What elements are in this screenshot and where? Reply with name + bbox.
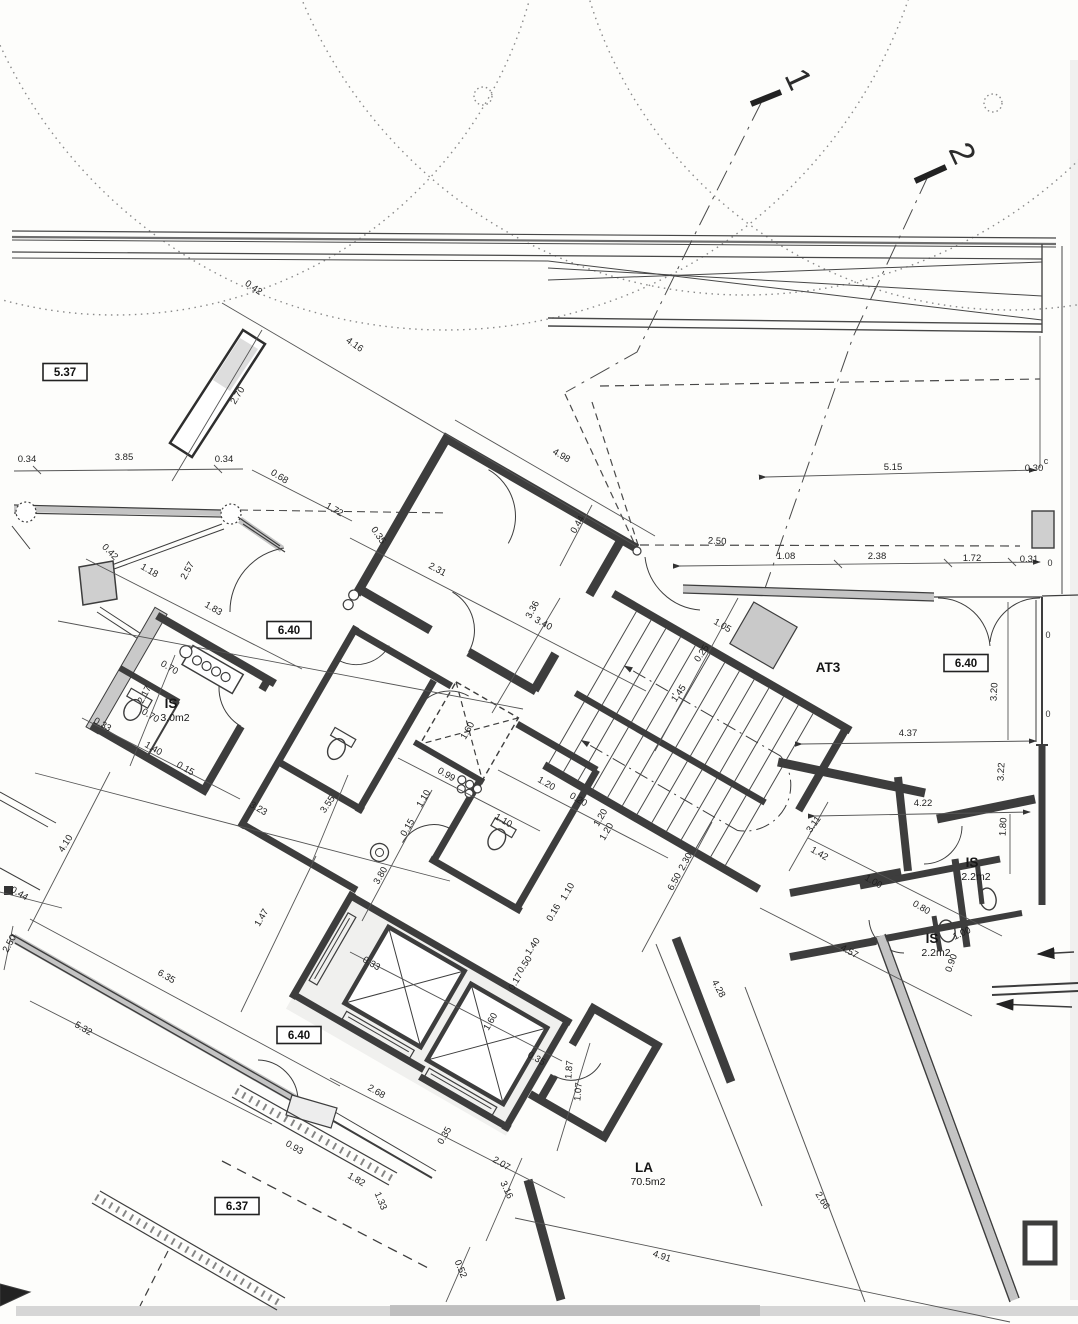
dimension-label: 6.35 — [155, 967, 177, 986]
dimension-label: 0.44 — [8, 884, 30, 903]
dimension-label: 1.05 — [711, 616, 733, 635]
dimension-label: 0.31 — [1020, 554, 1039, 565]
dimension-label: 2.50 — [708, 536, 727, 548]
dimension-label: 0.34 — [215, 454, 234, 465]
dimension-label: 0.80 — [910, 898, 932, 917]
section-marker-1-tick — [751, 92, 781, 104]
dimension-label: 0.30 — [1025, 463, 1044, 474]
dimension-label: 2.68 — [365, 1082, 387, 1101]
level-label: 6.40 — [278, 625, 300, 637]
dimension-chain-lines — [0, 303, 1040, 1322]
level-label: 6.40 — [288, 1030, 310, 1042]
dimension-label: 4.91 — [651, 1249, 672, 1265]
level-label: 5.37 — [54, 367, 76, 379]
edge-fragment: c — [1044, 456, 1049, 466]
dimension-label: 0.35 — [435, 1125, 454, 1147]
pier — [79, 561, 117, 605]
corner-box — [1025, 1223, 1055, 1263]
dimension-label: 1.20 — [535, 774, 557, 793]
dimension-label: 3.40 — [532, 615, 553, 633]
dimension-label: 0.34 — [18, 454, 37, 465]
pier — [730, 602, 797, 669]
room-name-label: IS — [926, 931, 939, 946]
room-area-label: 2.2m2 — [961, 871, 990, 883]
at3-boundary — [645, 511, 1078, 905]
dimension-label: 1.33 — [372, 1190, 389, 1211]
dimension-label: 6.50 — [666, 871, 684, 892]
la-boundary — [528, 934, 1078, 1302]
door-swing-arc — [645, 557, 700, 610]
dimension-label: 1.18 — [138, 561, 160, 580]
dimension-label: 3.20 — [989, 682, 1001, 701]
dimension-label: 1.07 — [572, 1082, 585, 1101]
dimension-label: 1.72 — [963, 553, 982, 564]
dimension-label: 4.28 — [709, 978, 727, 999]
column-circle — [221, 504, 241, 524]
dimension-label: 1.10 — [558, 881, 577, 903]
staircase — [522, 594, 851, 889]
edge-fragment: 0 — [1045, 630, 1050, 640]
section-marker-label: 2 — [941, 137, 983, 170]
room-area-label: 3.0m2 — [160, 712, 189, 724]
toilet — [484, 826, 509, 853]
toilet — [324, 736, 349, 763]
dimension-label: 3.85 — [115, 452, 134, 463]
scan-artifacts — [16, 60, 1078, 1316]
door-swing-arc — [924, 826, 962, 864]
door-swing-arc — [938, 598, 990, 646]
room-area-label: 70.5m2 — [630, 1176, 665, 1188]
dimension-label: 2.31 — [426, 561, 447, 579]
dimension-label: 1.10 — [414, 788, 433, 810]
door-swing-arc — [990, 598, 1040, 642]
level-label: 6.40 — [955, 658, 977, 670]
dimension-label: 5.15 — [884, 462, 903, 473]
dimension-label: 1.60 — [458, 720, 477, 742]
road-band — [12, 231, 1062, 594]
floor-plan-page: 0.424.162.700.343.850.340.681.720.352.31… — [0, 0, 1078, 1324]
sink — [367, 840, 392, 865]
dimension-label: 1.80 — [998, 817, 1010, 836]
dimension-label: 3.22 — [996, 762, 1008, 781]
room-name-label: LA — [635, 1160, 653, 1175]
dimension-label: 1.87 — [563, 1060, 576, 1079]
entrance-arrow — [1038, 952, 1074, 954]
dimension-label: 4.16 — [344, 335, 365, 355]
dimension-label: 2.57 — [179, 560, 197, 581]
dimension-label: 1.83 — [202, 599, 224, 618]
dimension-label: 3.80 — [371, 865, 390, 887]
dimension-label: 0.52 — [452, 1258, 469, 1279]
tree-canopy-dotted-circles — [0, 0, 1078, 330]
toilet-tank — [331, 727, 356, 747]
corner-markers — [633, 515, 1047, 555]
dimension-label: 4.37 — [899, 728, 918, 739]
door-swing-arc — [430, 592, 490, 652]
sink — [374, 847, 385, 858]
dimension-label: 2.38 — [868, 551, 887, 562]
dimension-label: 1.72 — [323, 500, 345, 519]
bench-mark — [0, 1284, 30, 1306]
dimension-label: 5.32 — [72, 1019, 94, 1038]
section-marker-label: 1 — [777, 63, 819, 96]
edge-fragment: 0 — [1047, 558, 1052, 568]
room-area-label: 2.2m2 — [921, 947, 950, 959]
dimension-label: 0.15 — [398, 817, 417, 839]
edge-fragment: 0 — [1045, 709, 1050, 719]
dimension-label: 1.47 — [252, 907, 271, 929]
column-circle — [16, 502, 36, 522]
pier — [1032, 511, 1054, 548]
dimension-label: 0.16 — [544, 902, 563, 924]
dimension-label: 0.70 — [158, 658, 180, 677]
dimension-label: 4.22 — [914, 798, 933, 809]
dimension-label: 3.16 — [497, 1179, 515, 1200]
dimension-label: 1.08 — [777, 551, 796, 562]
dimension-label: 0.93 — [283, 1138, 305, 1157]
room-name-label: IS — [165, 696, 178, 711]
elevator-shafts — [286, 893, 573, 1136]
upper-room — [341, 435, 637, 720]
room-name-label: IS — [966, 855, 979, 870]
is-cluster — [676, 762, 1035, 1082]
dimension-label: 4.98 — [550, 446, 572, 465]
door-swing-arc — [230, 548, 284, 612]
dimension-label: 0.42 — [99, 542, 120, 563]
level-label: 6.37 — [226, 1201, 248, 1213]
dimension-label: 0.42 — [243, 278, 264, 298]
dimension-label: 2.07 — [490, 1154, 512, 1173]
dimension-label: 3.11 — [804, 814, 823, 835]
dimension-label: 0.70 — [139, 706, 161, 725]
room-name-label: AT3 — [816, 660, 841, 675]
entrance-arrow — [997, 1004, 1072, 1007]
dimension-label: 1.10 — [492, 811, 514, 830]
dimension-label: 1.82 — [345, 1170, 367, 1189]
floor-plan-drawing: 0.424.162.700.343.850.340.681.720.352.31… — [0, 0, 1078, 1324]
section-marker-2-tick — [915, 167, 946, 181]
